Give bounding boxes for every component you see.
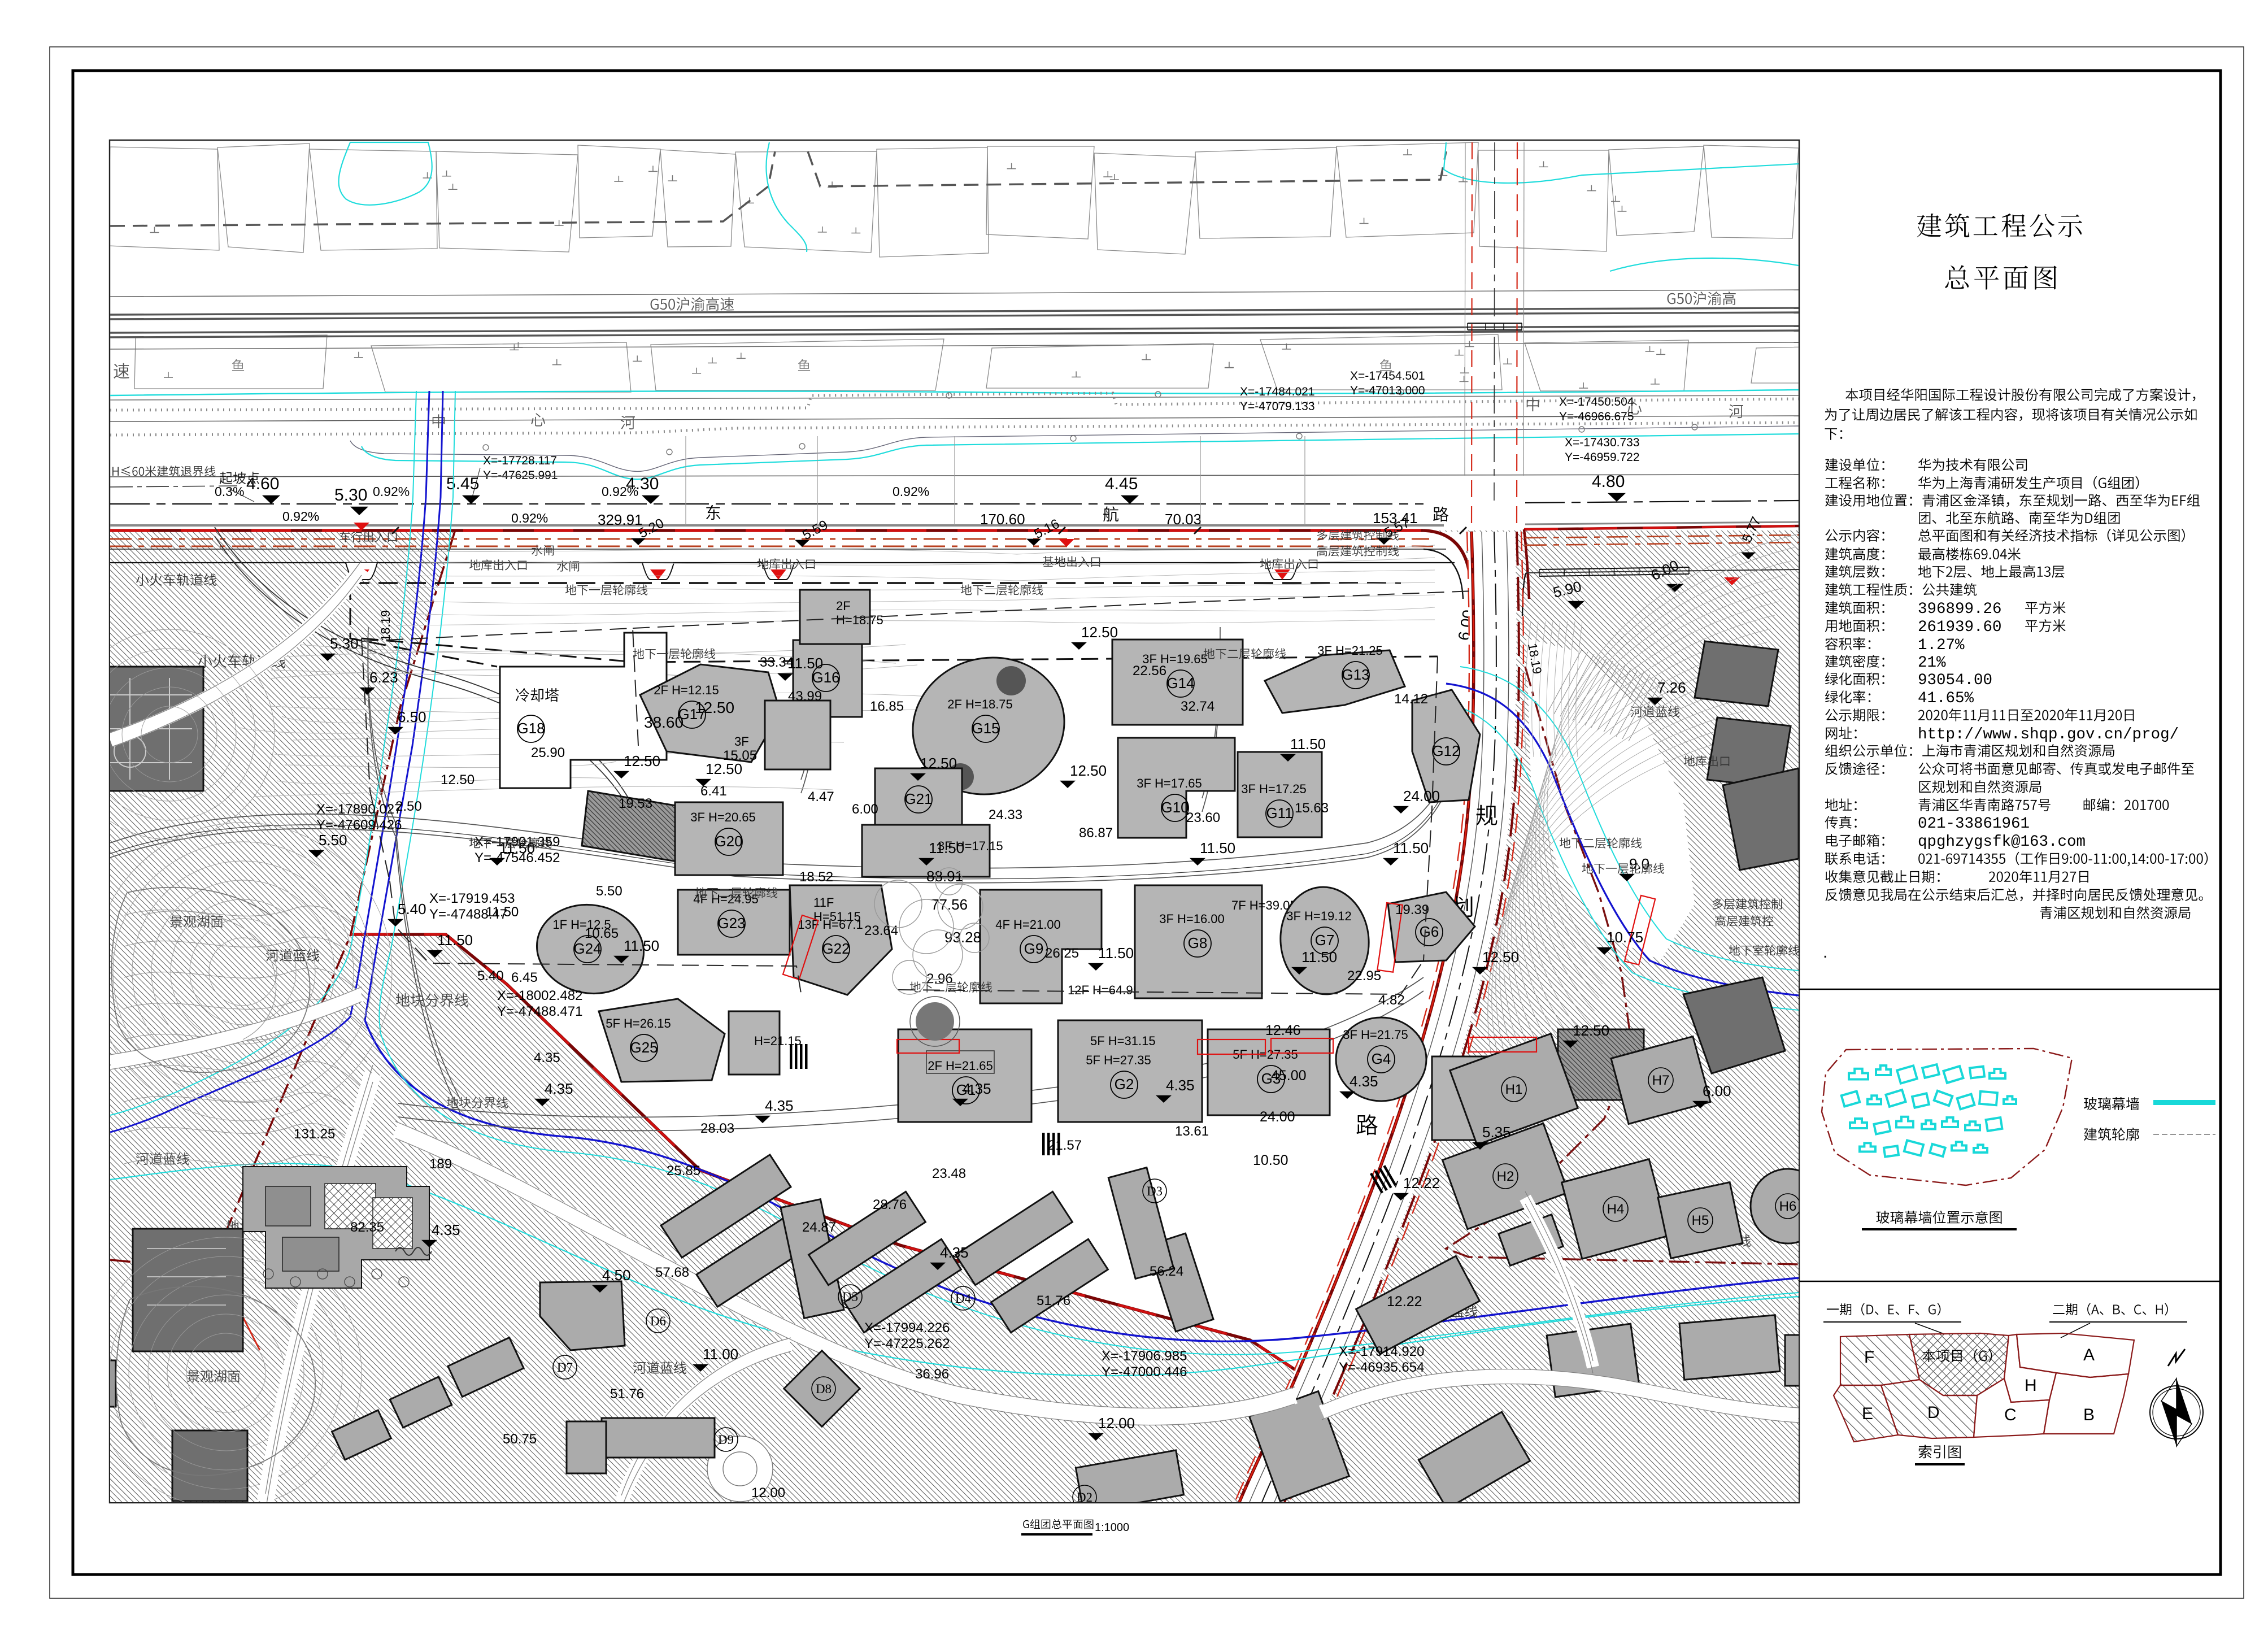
svg-text:G12: G12 [1432,742,1460,759]
svg-text:X=-17430.733: X=-17430.733 [1565,436,1640,449]
svg-text:131.25: 131.25 [294,1127,335,1142]
svg-text:19.39: 19.39 [1395,902,1429,917]
svg-text:21%: 21% [1918,654,1946,672]
svg-text:X=-17454.501: X=-17454.501 [1350,369,1425,382]
svg-text:3F H=19.12: 3F H=19.12 [1286,909,1352,923]
svg-text:11.00: 11.00 [703,1346,738,1363]
svg-text:93054.00: 93054.00 [1918,672,1992,689]
svg-text:25.90: 25.90 [531,745,565,760]
svg-text:16.85: 16.85 [870,699,904,714]
svg-text:3F H=20.65: 3F H=20.65 [690,810,756,824]
svg-text:qpghzygsfk@163.com: qpghzygsfk@163.com [1918,833,2086,851]
svg-text:G25: G25 [630,1039,658,1056]
svg-text:G2: G2 [1115,1076,1134,1093]
svg-text:G18: G18 [517,720,545,737]
svg-text:G21: G21 [904,790,932,807]
svg-text:H=51.15: H=51.15 [813,910,861,924]
svg-text:E: E [1862,1404,1873,1423]
svg-text:G6: G6 [1420,923,1439,940]
svg-text:22.95: 22.95 [1347,968,1381,984]
svg-text:11.50: 11.50 [1290,736,1326,753]
svg-text:11.50: 11.50 [1393,840,1429,856]
svg-text:D7: D7 [557,1360,573,1375]
svg-text:D6: D6 [650,1314,666,1328]
svg-text:5.50: 5.50 [596,884,622,899]
svg-text:23.64: 23.64 [864,923,898,938]
svg-text:4.35: 4.35 [1166,1077,1195,1094]
svg-text:12.50: 12.50 [920,755,957,772]
svg-text:43.99: 43.99 [788,689,822,704]
svg-text:G14: G14 [1166,675,1194,691]
svg-text:6.41: 6.41 [700,784,727,799]
svg-text:F: F [1864,1348,1874,1367]
svg-text:Y=-47013.000: Y=-47013.000 [1350,384,1425,397]
svg-text:23.60: 23.60 [1186,810,1220,825]
svg-text:Y=-47546.452: Y=-47546.452 [475,850,560,865]
svg-text:12.50: 12.50 [1081,624,1118,641]
svg-text:4.47: 4.47 [808,789,834,804]
svg-text:G7: G7 [1315,932,1335,949]
svg-text:12.50: 12.50 [1070,762,1107,779]
svg-text:1.27%: 1.27% [1918,637,1965,654]
svg-text:38.60: 38.60 [644,714,684,731]
svg-text:26.25: 26.25 [1045,946,1079,961]
svg-text:G15: G15 [972,720,999,737]
svg-text:4.35: 4.35 [432,1221,460,1238]
svg-text:A: A [2083,1346,2095,1364]
svg-text:021-33861961: 021-33861961 [1918,815,2030,833]
svg-text:3F H=17.65: 3F H=17.65 [1137,776,1202,790]
svg-text:32.74: 32.74 [1181,699,1214,714]
svg-text:51.76: 51.76 [1037,1293,1070,1308]
svg-text:15.63: 15.63 [1295,801,1329,816]
svg-text:G10: G10 [1161,799,1189,816]
svg-text:X=-17906.985: X=-17906.985 [1102,1349,1187,1364]
svg-text:X=-17914.920: X=-17914.920 [1339,1344,1424,1359]
svg-text:57.68: 57.68 [655,1265,689,1280]
svg-text:14.12: 14.12 [1394,691,1428,707]
svg-text:3F H=16.00: 3F H=16.00 [1159,912,1225,926]
svg-text:D3: D3 [1147,1184,1163,1198]
svg-text:6.45: 6.45 [511,970,538,985]
svg-text:H7: H7 [1652,1073,1670,1088]
svg-text:4.35: 4.35 [940,1244,969,1261]
svg-text:2F: 2F [836,599,851,613]
svg-text:4.82: 4.82 [1378,993,1405,1008]
svg-text:18.52: 18.52 [799,869,833,885]
svg-text:Y=-46959.722: Y=-46959.722 [1565,451,1640,464]
svg-text:5.30: 5.30 [330,635,359,652]
svg-text:X=-17994.226: X=-17994.226 [864,1320,950,1336]
svg-text:5F H=31.15: 5F H=31.15 [1090,1034,1156,1048]
svg-text:G11: G11 [1266,804,1292,821]
svg-text:170.60: 170.60 [980,511,1025,528]
svg-text:2F H=12.15: 2F H=12.15 [654,683,719,697]
svg-text:5.40: 5.40 [477,968,504,984]
svg-text:3F H=21.25: 3F H=21.25 [1317,643,1383,658]
svg-text:24.00: 24.00 [1403,788,1440,804]
svg-text:5F H=27.35: 5F H=27.35 [1086,1053,1151,1067]
svg-text:Y=-47488.47: Y=-47488.47 [429,907,507,922]
svg-text:X=-17890.027: X=-17890.027 [316,802,402,817]
svg-text:3F H=21.75: 3F H=21.75 [1343,1028,1408,1042]
svg-text:2F H=18.75: 2F H=18.75 [947,697,1013,711]
svg-text:G4: G4 [1372,1050,1391,1067]
svg-text:189: 189 [429,1156,452,1172]
svg-text:12.50: 12.50 [1482,949,1519,965]
svg-text:G9: G9 [1024,940,1044,957]
svg-text:51.76: 51.76 [610,1386,644,1402]
svg-text:4.35: 4.35 [1350,1073,1378,1090]
svg-text:329.91: 329.91 [598,511,643,528]
svg-text:D4: D4 [955,1291,972,1306]
svg-text:5.35: 5.35 [1482,1124,1511,1141]
svg-text:3F: 3F [734,734,749,749]
svg-text:6.50: 6.50 [398,708,426,725]
svg-text:11.50: 11.50 [929,840,964,856]
svg-text:56.24: 56.24 [1150,1264,1183,1279]
svg-text:3F H=17.25: 3F H=17.25 [1241,782,1307,796]
svg-text:11.50: 11.50 [1301,949,1337,965]
svg-text:Y=-47225.262: Y=-47225.262 [864,1336,950,1351]
svg-text:4F H=21.00: 4F H=21.00 [995,917,1061,932]
svg-text:H1: H1 [1505,1082,1523,1097]
svg-text:0.92%: 0.92% [893,484,929,499]
svg-text:261939.60: 261939.60 [1918,619,2002,636]
svg-text:Y=-47625.991: Y=-47625.991 [483,469,558,482]
svg-text:25.85: 25.85 [667,1163,700,1178]
svg-text:7.26: 7.26 [1657,679,1686,696]
svg-text:93.28: 93.28 [944,929,981,946]
svg-text:6.00: 6.00 [852,802,878,817]
svg-text:1:1000: 1:1000 [1095,1521,1129,1534]
svg-text:H4: H4 [1607,1202,1625,1217]
svg-text:19.53: 19.53 [619,796,652,811]
svg-text:D8: D8 [816,1382,832,1396]
svg-text:B: B [2083,1406,2095,1424]
svg-text:H: H [2025,1376,2037,1395]
svg-text:11.50: 11.50 [1098,945,1134,962]
svg-text:H=21.15: H=21.15 [754,1034,802,1048]
svg-text:X=-17484.021: X=-17484.021 [1240,385,1315,398]
svg-text:24.33: 24.33 [989,807,1022,823]
svg-text:70.03: 70.03 [1165,511,1202,528]
svg-text:H=18.75: H=18.75 [836,613,883,627]
svg-text:5.45: 5.45 [446,475,479,493]
svg-text:18.19: 18.19 [378,610,393,641]
svg-text:11.50: 11.50 [1200,840,1235,856]
svg-text:28.76: 28.76 [873,1197,907,1212]
svg-text:11F: 11F [813,895,834,910]
svg-text:Y=-47609.426: Y=-47609.426 [316,817,402,833]
svg-text:H2: H2 [1497,1169,1514,1184]
svg-text:24.87: 24.87 [802,1220,836,1235]
svg-text:4.80: 4.80 [1592,472,1625,491]
svg-text:22.56: 22.56 [1133,663,1166,679]
svg-text:45.00: 45.00 [1271,1068,1307,1084]
svg-text:Y=-46935.654: Y=-46935.654 [1339,1360,1424,1375]
svg-text:396899.26: 396899.26 [1918,601,2002,618]
svg-text:5.40: 5.40 [398,901,426,917]
svg-text:13.61: 13.61 [1175,1124,1209,1139]
svg-text:D: D [1927,1403,1940,1422]
svg-text:G20: G20 [715,833,742,850]
svg-text:G8: G8 [1188,934,1208,951]
svg-text:4.50: 4.50 [602,1267,631,1284]
svg-text:0.92%: 0.92% [373,484,410,499]
svg-text:10.75: 10.75 [1607,929,1643,946]
svg-text:5.30: 5.30 [334,486,367,504]
svg-text:82.35: 82.35 [350,1220,384,1235]
svg-text:24.00: 24.00 [1260,1109,1295,1125]
svg-text:15.05: 15.05 [723,748,757,763]
svg-text:50.75: 50.75 [503,1432,537,1447]
svg-text:Y=-47079.133: Y=-47079.133 [1240,400,1315,413]
svg-text:H5: H5 [1692,1213,1709,1228]
svg-text:0.92%: 0.92% [602,484,638,499]
svg-text:36.96: 36.96 [915,1367,949,1382]
svg-text:Y=-47488.471: Y=-47488.471 [497,1004,582,1019]
svg-text:G23: G23 [717,915,745,932]
svg-text:4.35: 4.35 [545,1080,573,1097]
svg-text:D9: D9 [718,1433,734,1447]
svg-text:12.00: 12.00 [751,1485,785,1500]
svg-text:12.50: 12.50 [1573,1022,1609,1039]
svg-text:11.50: 11.50 [624,937,659,954]
svg-text:12.22: 12.22 [1387,1294,1422,1310]
svg-text:G24: G24 [573,940,601,957]
svg-text:12.50: 12.50 [441,772,475,788]
svg-text:4.35: 4.35 [534,1050,560,1065]
svg-text:G13: G13 [1342,666,1369,683]
svg-text:6.23: 6.23 [369,669,398,686]
svg-text:28.03: 28.03 [700,1121,734,1136]
svg-text:Y=-46966.675: Y=-46966.675 [1559,410,1634,423]
svg-text:X=-17450.504: X=-17450.504 [1559,395,1634,408]
svg-text:10.50: 10.50 [1253,1152,1288,1168]
svg-text:12.46: 12.46 [1265,1023,1301,1038]
svg-text:12F H=64.95: 12F H=64.95 [1068,983,1140,997]
svg-text:4.45: 4.45 [1105,475,1138,493]
svg-text:X=-17919.453: X=-17919.453 [429,891,515,906]
svg-text:12.50: 12.50 [624,753,660,769]
svg-text:12.22: 12.22 [1403,1175,1440,1191]
svg-text:4.35: 4.35 [765,1097,794,1114]
svg-text:6.00: 6.00 [1703,1082,1731,1099]
svg-text:X=-18002.482: X=-18002.482 [497,988,582,1003]
svg-text:G22: G22 [822,940,850,957]
svg-text:5.50: 5.50 [319,832,347,849]
svg-text:D5: D5 [842,1290,858,1304]
svg-text:.: . [1823,943,1827,962]
svg-text:Y=-47000.446: Y=-47000.446 [1102,1364,1187,1380]
svg-text:12.00: 12.00 [1098,1415,1135,1432]
svg-text:H6: H6 [1779,1199,1797,1214]
svg-text:33.34: 33.34 [760,655,794,670]
svg-text:11.50: 11.50 [437,932,473,949]
svg-text:X=-17728.117: X=-17728.117 [483,454,557,467]
svg-text:10.65: 10.65 [585,926,619,941]
svg-text:4.35: 4.35 [963,1080,991,1097]
svg-text:5F H=26.15: 5F H=26.15 [606,1016,671,1030]
svg-text:86.87: 86.87 [1079,825,1113,841]
svg-text:0.92%: 0.92% [511,511,548,525]
svg-text:88.91: 88.91 [926,868,963,885]
svg-text:2F H=21.65: 2F H=21.65 [928,1059,993,1073]
svg-text:0.92%: 0.92% [282,509,319,524]
svg-text:23.48: 23.48 [932,1166,966,1181]
svg-text:41.65%: 41.65% [1918,690,1974,707]
svg-text:C: C [2004,1406,2017,1424]
svg-text:77.56: 77.56 [931,896,968,913]
svg-text:12.50: 12.50 [695,699,734,716]
svg-text:http://www.shqp.gov.cn/prog/: http://www.shqp.gov.cn/prog/ [1918,726,2179,743]
